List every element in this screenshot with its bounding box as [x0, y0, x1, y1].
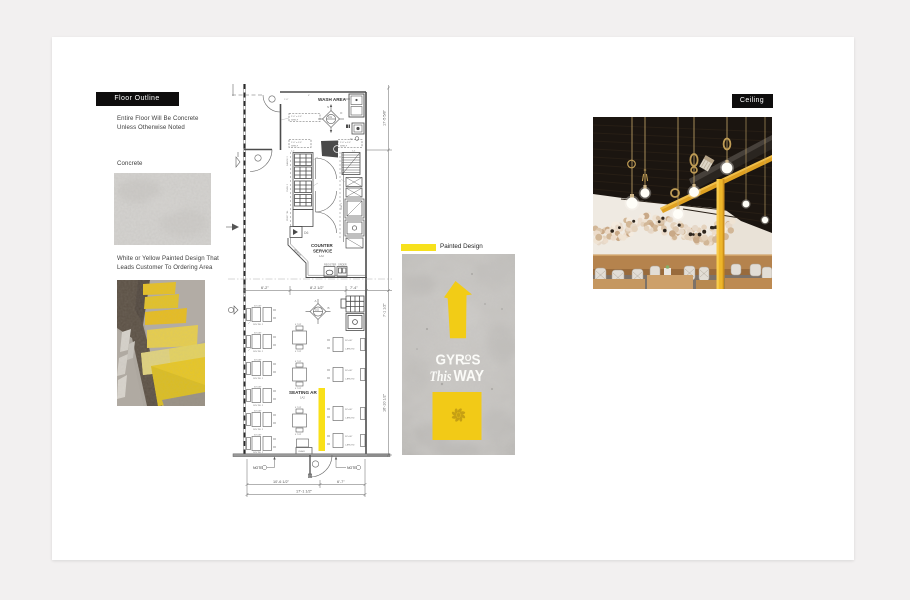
- svg-text:L ARCHD: L ARCHD: [345, 417, 355, 420]
- svg-text:17'-1 1/2": 17'-1 1/2": [296, 490, 313, 494]
- svg-text:30"x48": 30"x48": [254, 333, 262, 335]
- svg-text:GYROS: GYROS: [435, 353, 480, 369]
- svg-text:L ARCHD: L ARCHD: [345, 444, 355, 447]
- svg-text:DIN TBL 2: DIN TBL 2: [253, 405, 264, 407]
- svg-text:ORDER: ORDER: [338, 264, 347, 267]
- svg-text:DIN TBL 2: DIN TBL 2: [253, 429, 264, 431]
- svg-text:4 TOP: 4 TOP: [295, 434, 302, 436]
- svg-text:DIN TBL 2: DIN TBL 2: [253, 351, 264, 353]
- svg-text:RANGE 3: RANGE 3: [286, 156, 289, 166]
- svg-text:SEATING AR: SEATING AR: [289, 390, 318, 395]
- svg-text:SHELF: SHELF: [291, 146, 299, 148]
- svg-text:1'-8": 1'-8": [284, 99, 289, 101]
- svg-text:7'-1 1/2": 7'-1 1/2": [383, 302, 387, 317]
- svg-text:30"x48": 30"x48": [254, 387, 262, 389]
- svg-text:36"x36": 36"x36": [345, 409, 353, 411]
- svg-text:30"x48": 30"x48": [254, 306, 262, 308]
- svg-text:6'-7": 6'-7": [337, 480, 345, 484]
- svg-text:2'-0" x 4'-0": 2'-0" x 4'-0": [291, 116, 302, 118]
- svg-text:2'-0" x 4'-0": 2'-0" x 4'-0": [291, 142, 302, 144]
- svg-text:OVEN 2: OVEN 2: [287, 183, 289, 192]
- svg-text:30"x48": 30"x48": [254, 435, 262, 437]
- svg-text:DIN TBL 2: DIN TBL 2: [253, 452, 264, 454]
- svg-text:O: O: [340, 111, 343, 115]
- svg-text:CHAIR: CHAIR: [298, 450, 305, 453]
- svg-text:SINK 3: SINK 3: [341, 202, 343, 210]
- svg-text:WASH AREA: WASH AREA: [318, 97, 347, 102]
- svg-text:D6: D6: [304, 231, 308, 235]
- svg-text:2'-0" x 4'-0": 2'-0" x 4'-0": [340, 142, 351, 144]
- svg-text:SHELF: SHELF: [340, 146, 348, 148]
- svg-text:WAY: WAY: [453, 368, 484, 385]
- svg-text:N: N: [327, 105, 329, 109]
- svg-text:7'-4": 7'-4": [350, 286, 358, 290]
- svg-text:6'-2": 6'-2": [261, 286, 269, 290]
- svg-text:REGISTER: REGISTER: [324, 264, 336, 267]
- svg-text:SHELF: SHELF: [291, 120, 299, 122]
- svg-text:COUNTER: COUNTER: [311, 243, 334, 248]
- svg-text:1A2: 1A2: [319, 254, 324, 258]
- svg-text:This: This: [429, 369, 451, 385]
- svg-text:PREP TBL: PREP TBL: [287, 210, 289, 221]
- svg-text:30"x48": 30"x48": [254, 411, 262, 413]
- svg-text:SERVICE: SERVICE: [313, 249, 332, 254]
- svg-text:1A2: 1A2: [300, 396, 305, 400]
- svg-text:102: 102: [315, 309, 320, 312]
- svg-text:DIN TBL 2: DIN TBL 2: [253, 324, 264, 326]
- svg-text:A: A: [315, 299, 317, 303]
- svg-text:36"x36": 36"x36": [345, 436, 353, 438]
- svg-text:NOTE: NOTE: [347, 466, 357, 470]
- svg-text:pickup: pickup: [293, 248, 302, 257]
- svg-text:B: B: [328, 306, 330, 310]
- svg-text:DIN TBL 2: DIN TBL 2: [253, 378, 264, 380]
- svg-text:36"x36": 36"x36": [345, 340, 353, 342]
- svg-text:36"x36": 36"x36": [345, 370, 353, 372]
- svg-text:30"x48": 30"x48": [254, 360, 262, 362]
- svg-text:17'-5 5/8": 17'-5 5/8": [383, 109, 387, 126]
- svg-text:16'-10 1/2": 16'-10 1/2": [383, 393, 387, 412]
- svg-text:4 TOP: 4 TOP: [295, 351, 302, 353]
- svg-text:L ARCHD: L ARCHD: [345, 378, 355, 381]
- svg-text:rc: rc: [350, 137, 353, 141]
- svg-text:8'-2 1/2": 8'-2 1/2": [310, 286, 325, 290]
- svg-text:6": 6": [308, 95, 310, 97]
- svg-text:10'-6 1/2": 10'-6 1/2": [273, 480, 290, 484]
- svg-text:NOTE: NOTE: [253, 466, 263, 470]
- svg-text:L ARCHD: L ARCHD: [345, 348, 355, 351]
- svg-text:101: 101: [328, 116, 333, 119]
